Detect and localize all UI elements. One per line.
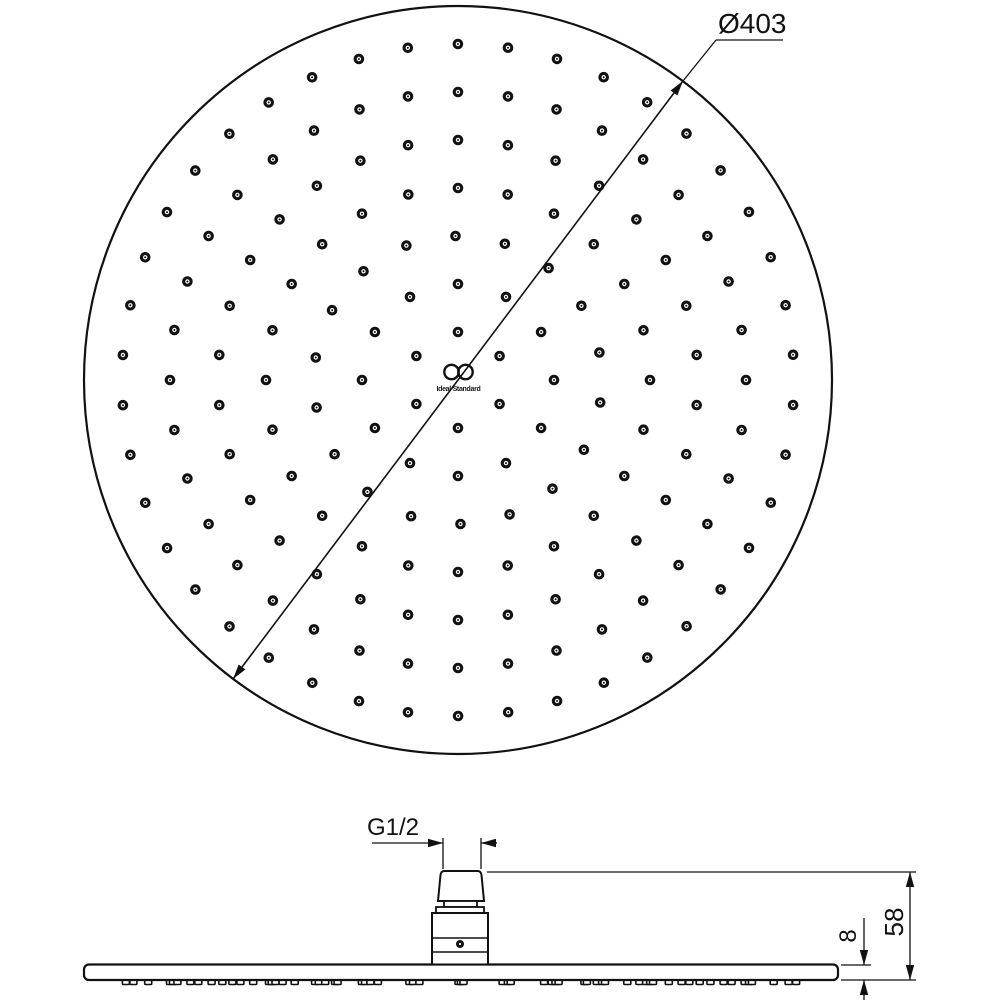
nozzle-dot xyxy=(403,91,414,102)
nozzle-dot-center xyxy=(728,281,730,283)
nozzle-dot-center xyxy=(358,58,360,60)
nozzle-dot xyxy=(597,624,608,635)
nozzle-dot xyxy=(453,135,464,146)
nozzle-dot-center xyxy=(457,619,459,621)
nozzle-dot-center xyxy=(122,404,124,406)
nozzle-dot-center xyxy=(741,329,743,331)
nozzle-dot xyxy=(355,594,366,605)
nozzle-dot-center xyxy=(748,547,750,549)
nozzle-dot xyxy=(401,240,412,251)
nozzle-dot xyxy=(579,445,590,456)
nozzle-dot-center xyxy=(745,379,747,381)
nozzle-dot xyxy=(267,424,278,435)
nozzle-dot xyxy=(638,424,649,435)
nozzle-dot-center xyxy=(455,235,457,237)
nozzle-dot xyxy=(702,519,713,530)
nozzle-dot-center xyxy=(507,95,509,97)
nozzle-dot xyxy=(268,154,279,165)
nozzle-dot xyxy=(224,449,235,460)
nozzle-dot-center xyxy=(359,650,361,652)
nozzle-dot-center xyxy=(415,355,417,357)
nozzle-dot xyxy=(453,39,464,50)
nozzle-dot-center xyxy=(507,194,509,196)
nozzle-dot-center xyxy=(169,379,171,381)
nozzle-dot-center xyxy=(548,267,550,269)
nozzle-dot xyxy=(245,255,256,266)
nozzle-dot xyxy=(552,54,563,65)
nozzle-dot xyxy=(224,301,235,312)
nozzle-dot-center xyxy=(504,243,506,245)
nozzle-dot xyxy=(503,707,514,718)
nozzle-dot xyxy=(780,449,791,460)
nozzle-dot-center xyxy=(313,628,315,630)
nozzle-dot xyxy=(681,301,692,312)
nozzle-dot xyxy=(224,621,235,632)
nozzle-dot xyxy=(500,239,511,250)
nozzle-dot-center xyxy=(457,475,459,477)
nozzle-dot xyxy=(309,125,320,136)
nozzle-dot-center xyxy=(457,43,459,45)
nozzle-dot-center xyxy=(407,614,409,616)
nozzle-dot-center xyxy=(635,218,637,220)
nozzle-dot-center xyxy=(598,573,600,575)
nozzle-dot xyxy=(594,181,605,192)
nozzle-dot xyxy=(673,190,684,201)
nozzle-dot xyxy=(715,584,726,595)
nozzle-dot-center xyxy=(507,614,509,616)
nozzle-dot-center xyxy=(407,663,409,665)
nozzle-dot xyxy=(744,543,755,554)
nozzle-dot-center xyxy=(728,478,730,480)
nozzle-dot-center xyxy=(540,331,542,333)
nozzle-dot-center xyxy=(792,404,794,406)
nozzle-dot-center xyxy=(291,283,293,285)
height-arrow-bottom xyxy=(906,965,914,980)
nozzle-dot xyxy=(502,189,513,200)
nozzle-dot xyxy=(549,375,560,386)
nozzle-dot xyxy=(403,560,414,571)
nozzle-dot-center xyxy=(186,281,188,283)
nozzle-dot xyxy=(744,207,755,218)
nozzle-dot xyxy=(203,519,214,530)
nozzle-dot-center xyxy=(272,329,274,331)
nozzle-dot xyxy=(286,471,297,482)
nozzle-dot-center xyxy=(173,329,175,331)
nozzle-dot-center xyxy=(642,158,644,160)
nozzle-dot-center xyxy=(556,650,558,652)
nozzle-dot xyxy=(405,292,416,303)
nozzle-dot-center xyxy=(685,305,687,307)
nozzle-dot xyxy=(267,325,278,336)
nozzle-dot-center xyxy=(748,211,750,213)
nozzle-dot-center xyxy=(553,379,555,381)
nozzle-dot-center xyxy=(208,235,210,237)
nozzle-dot xyxy=(453,327,464,338)
nozzle-dot-center xyxy=(361,213,363,215)
logo-ring-left xyxy=(444,365,458,379)
nozzle-dot-center xyxy=(665,259,667,261)
nozzle-dot-center xyxy=(236,564,238,566)
nozzle-dot-center xyxy=(313,130,315,132)
height-dimension-label: 58 xyxy=(879,908,909,937)
nozzle-dot-center xyxy=(173,429,175,431)
nozzle-dot-center xyxy=(316,407,318,409)
nozzle-dot xyxy=(681,128,692,139)
nozzle-dot xyxy=(547,483,558,494)
top-view-plan xyxy=(84,6,832,754)
nozzle-dot-center xyxy=(457,283,459,285)
nozzle-dot-center xyxy=(359,598,361,600)
nozzle-dot-center xyxy=(361,545,363,547)
nozzle-dot xyxy=(140,498,151,509)
nozzle-dot xyxy=(551,645,562,656)
nozzle-dot xyxy=(312,569,323,580)
nozzle-dot xyxy=(597,125,608,136)
nozzle-dot-center xyxy=(678,564,680,566)
nozzle-dot xyxy=(169,325,180,336)
nozzle-dot-center xyxy=(272,429,274,431)
nozzle-dot xyxy=(329,449,340,460)
nozzle-dot xyxy=(354,696,365,707)
shower-head-technical-drawing: Ø403 Ideal Standard G1/2 58 8 xyxy=(0,0,1000,1000)
height-arrow-top xyxy=(906,872,914,887)
nozzle-dot-center xyxy=(556,108,558,110)
nozzle-dot xyxy=(190,584,201,595)
nozzle-dot xyxy=(599,677,610,688)
thread-size-label: G1/2 xyxy=(367,814,419,841)
nozzle-dot-center xyxy=(405,245,407,247)
nozzle-dot-center xyxy=(311,76,313,78)
nozzle-dot-center xyxy=(208,523,210,525)
nozzle-dot-center xyxy=(229,625,231,627)
nozzle-dot-center xyxy=(374,427,376,429)
nozzle-dot-center xyxy=(540,427,542,429)
nozzle-dot-center xyxy=(507,663,509,665)
nozzle-dot-center xyxy=(741,429,743,431)
nozzle-dot-center xyxy=(598,185,600,187)
nozzle-dot xyxy=(723,276,734,287)
nozzle-dot xyxy=(190,165,201,176)
connector-screw-hole xyxy=(459,943,461,945)
thread-arrow-left xyxy=(428,839,443,847)
nozzle-dot-center xyxy=(623,475,625,477)
nozzle-dot-center xyxy=(279,540,281,542)
nozzle-dot-center xyxy=(678,194,680,196)
nozzle-dot xyxy=(645,375,656,386)
nozzle-dot xyxy=(494,399,505,410)
nozzle-dot-center xyxy=(410,515,412,517)
nozzle-dot xyxy=(307,72,318,83)
nozzle-dot xyxy=(661,255,672,266)
connector-screw xyxy=(456,940,464,948)
nozzle-dot xyxy=(370,327,381,338)
nozzle-dot-center xyxy=(407,47,409,49)
thickness-arrow-top xyxy=(860,950,868,965)
nozzle-dot xyxy=(309,624,320,635)
nozzle-dot-center xyxy=(268,657,270,659)
nozzle-dot-center xyxy=(249,259,251,261)
nozzle-dot xyxy=(788,400,799,411)
nozzle-dot xyxy=(736,425,747,436)
nozzle-dot xyxy=(642,97,653,108)
nozzle-dot xyxy=(358,266,369,277)
nozzle-dot xyxy=(403,610,414,621)
nozzle-dot-center xyxy=(601,130,603,132)
nozzle-dot xyxy=(118,400,129,411)
nozzle-dot xyxy=(494,351,505,362)
nozzle-dot-center xyxy=(228,133,230,135)
nozzle-dot-center xyxy=(265,379,267,381)
nozzle-dot-center xyxy=(186,478,188,480)
nozzle-dot xyxy=(619,279,630,290)
nozzle-dot-center xyxy=(457,139,459,141)
nozzle-dot xyxy=(453,87,464,98)
nozzle-dot-center xyxy=(583,449,585,451)
nozzle-dot xyxy=(406,511,417,522)
nozzle-dot-center xyxy=(457,187,459,189)
nozzle-dot xyxy=(453,663,464,674)
nozzle-dot xyxy=(702,231,713,242)
nozzle-dot-center xyxy=(785,304,787,306)
nozzle-dot xyxy=(576,301,587,312)
nozzle-dot xyxy=(455,519,466,530)
nozzle-dot-center xyxy=(720,169,722,171)
nozzle-dot xyxy=(354,54,365,65)
nozzle-dot-center xyxy=(556,700,558,702)
nozzle-dot-center xyxy=(358,700,360,702)
nozzle-dot-center xyxy=(665,499,667,501)
nozzle-dot xyxy=(453,471,464,482)
nozzle-dot-center xyxy=(315,357,317,359)
nozzle-dot xyxy=(673,560,684,571)
nozzle-dot-center xyxy=(603,682,605,684)
nozzle-dot-center xyxy=(598,352,600,354)
nozzle-dot xyxy=(549,541,560,552)
nozzle-dot-center xyxy=(649,379,651,381)
nozzle-dot-center xyxy=(361,379,363,381)
nozzle-dot xyxy=(723,473,734,484)
nozzle-dot xyxy=(403,658,414,669)
nozzle-dot-center xyxy=(770,502,772,504)
nozzle-dot xyxy=(642,652,653,663)
nozzle-dot-center xyxy=(359,160,361,162)
nozzle-dot xyxy=(355,155,366,166)
nozzle-dot xyxy=(453,615,464,626)
nozzle-dot xyxy=(681,449,692,460)
nozzle-dot-center xyxy=(407,194,409,196)
nozzle-dot-center xyxy=(407,565,409,567)
nozzle-dot xyxy=(232,190,243,201)
nozzle-dot xyxy=(263,97,274,108)
nozzle-dot xyxy=(638,154,649,165)
diameter-arrow-upper xyxy=(671,81,683,96)
nozzle-dot xyxy=(504,509,515,520)
nozzle-dot-center xyxy=(268,101,270,103)
nozzle-dot xyxy=(453,711,464,722)
nozzle-dot xyxy=(631,535,642,546)
thickness-dimension-label: 8 xyxy=(835,929,862,942)
thread-connector xyxy=(438,871,484,901)
nozzle-dot-center xyxy=(555,598,557,600)
nozzle-dot-center xyxy=(321,515,323,517)
nozzle-dot-center xyxy=(601,628,603,630)
nozzle-dot xyxy=(550,594,561,605)
nozzle-dot-center xyxy=(696,404,698,406)
nozzle-dot xyxy=(274,214,285,225)
nozzle-dot-center xyxy=(415,403,417,405)
nozzle-dot-center xyxy=(646,657,648,659)
nozzle-dot xyxy=(788,350,799,361)
diameter-label: Ø403 xyxy=(718,8,787,39)
nozzle-dot-center xyxy=(129,304,131,306)
nozzle-dot xyxy=(661,495,672,506)
nozzle-dot xyxy=(245,495,256,506)
nozzle-dot xyxy=(503,91,514,102)
nozzle-dot xyxy=(551,104,562,115)
nozzle-dot-center xyxy=(507,711,509,713)
nozzle-dot xyxy=(224,129,235,140)
nozzle-dot xyxy=(162,207,173,218)
nozzle-dot-center xyxy=(409,462,411,464)
nozzle-dot-center xyxy=(505,296,507,298)
nozzle-dot-center xyxy=(407,144,409,146)
nozzle-dot xyxy=(125,300,136,311)
nozzle-dot xyxy=(503,140,514,151)
nozzle-dot-center xyxy=(460,523,462,525)
nozzle-dot-center xyxy=(279,218,281,220)
nozzle-dot xyxy=(118,350,129,361)
nozzle-dot-center xyxy=(366,491,368,493)
nozzle-dot-center xyxy=(218,404,220,406)
nozzle-dot xyxy=(140,252,151,263)
nozzle-dot xyxy=(214,350,225,361)
nozzle-dot-center xyxy=(580,305,582,307)
diameter-arrow-lower xyxy=(233,665,245,680)
nozzle-dot xyxy=(638,595,649,606)
nozzle-dot-center xyxy=(272,158,274,160)
nozzle-dot xyxy=(317,511,328,522)
nozzle-dot-center xyxy=(720,588,722,590)
nozzle-dot-center xyxy=(229,305,231,307)
nozzle-dot xyxy=(261,375,272,386)
nozzle-dot-center xyxy=(457,715,459,717)
thread-arrow-right xyxy=(481,839,496,847)
nozzle-dot-center xyxy=(686,625,688,627)
nozzle-dot-center xyxy=(291,475,293,477)
nozzle-dot-center xyxy=(635,540,637,542)
nozzle-dot xyxy=(598,72,609,83)
nozzle-dot xyxy=(766,497,777,508)
nozzle-dot xyxy=(453,423,464,434)
nozzle-dot-center xyxy=(363,270,365,272)
nozzle-dot-center xyxy=(499,403,501,405)
nozzle-dot xyxy=(536,327,547,338)
nozzle-dot xyxy=(268,595,279,606)
nozzle-dot xyxy=(501,292,512,303)
nozzle-dot xyxy=(691,400,702,411)
nozzle-dot-center xyxy=(507,144,509,146)
nozzle-dot xyxy=(307,678,318,689)
nozzle-dot xyxy=(274,535,285,546)
nozzle-dot-center xyxy=(785,454,787,456)
nozzle-dot xyxy=(552,696,563,707)
nozzle-dot-center xyxy=(144,256,146,258)
nozzle-dot xyxy=(589,239,600,250)
nozzle-dot xyxy=(619,471,630,482)
side-view-profile xyxy=(84,838,916,1000)
nozzle-dot xyxy=(232,560,243,571)
nozzle-dot xyxy=(411,399,422,410)
nozzle-dot xyxy=(403,707,414,718)
nozzle-dot xyxy=(450,231,461,242)
nozzle-dot xyxy=(165,375,176,386)
logo-text: Ideal Standard xyxy=(436,386,480,393)
nozzle-dot-center xyxy=(321,243,323,245)
nozzle-dot xyxy=(595,397,606,408)
nozzle-dot xyxy=(182,276,193,287)
connector-neck xyxy=(444,901,477,907)
nozzle-dot-center xyxy=(359,108,361,110)
nozzle-dot-center xyxy=(144,502,146,504)
nozzle-dot-center xyxy=(553,213,555,215)
nozzle-dot-center xyxy=(166,211,168,213)
nozzle-dot-center xyxy=(407,95,409,97)
nozzle-dot-center xyxy=(331,309,333,311)
nozzle-dot-center xyxy=(272,600,274,602)
nozzle-dot xyxy=(354,104,365,115)
nozzle-dot xyxy=(317,239,328,250)
nozzle-dot-center xyxy=(556,58,558,60)
nozzle-dot-center xyxy=(457,667,459,669)
nozzle-dot-center xyxy=(696,354,698,356)
plate-profile xyxy=(84,965,838,981)
nozzle-dot-center xyxy=(507,47,509,49)
nozzle-dot-center xyxy=(509,513,511,515)
nozzle-dot-center xyxy=(457,427,459,429)
nozzle-dot xyxy=(715,165,726,176)
nozzle-dot xyxy=(453,183,464,194)
nozzle-dot xyxy=(736,325,747,336)
nozzle-dot xyxy=(403,43,414,54)
nozzle-dot-center xyxy=(505,462,507,464)
nozzle-dot-center xyxy=(334,453,336,455)
nozzle-dot-center xyxy=(593,515,595,517)
nozzle-dot-center xyxy=(555,160,557,162)
nozzle-dot-center xyxy=(552,488,554,490)
nozzle-dot xyxy=(125,450,136,461)
nozzle-dot xyxy=(501,458,512,469)
nozzle-dot xyxy=(403,140,414,151)
nozzle-dot xyxy=(503,658,514,669)
nozzle-dot-center xyxy=(499,355,501,357)
nozzle-dot-center xyxy=(194,170,196,172)
nozzle-dot-center xyxy=(229,453,231,455)
nozzle-dot xyxy=(589,511,600,522)
nozzle-dot-center xyxy=(457,331,459,333)
nozzle-dot-center xyxy=(129,454,131,456)
nozzle-dot xyxy=(403,189,414,200)
nozzle-dot-center xyxy=(553,545,555,547)
nozzle-dot-center xyxy=(642,600,644,602)
nozzle-dot-center xyxy=(122,354,124,356)
thickness-arrow-bottom xyxy=(860,980,868,995)
nozzle-dot xyxy=(357,375,368,386)
nozzle-dot xyxy=(631,214,642,225)
nozzle-dot-center xyxy=(407,711,409,713)
nozzle-dot xyxy=(411,351,422,362)
nozzle-dot-center xyxy=(218,354,220,356)
nozzle-dot xyxy=(182,473,193,484)
